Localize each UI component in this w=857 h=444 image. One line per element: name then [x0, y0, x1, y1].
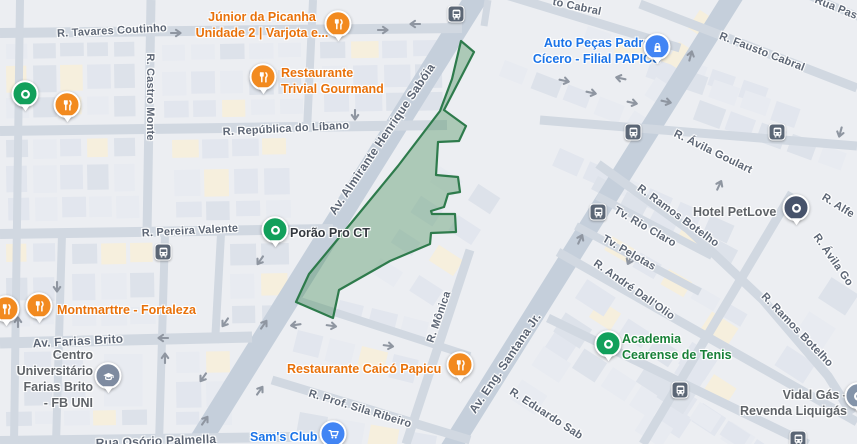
poi-label-line: Porão Pro CT	[290, 225, 370, 241]
poi-label-auto-pecas-padre-cicero[interactable]: Auto Peças PadreCícero - Filial PAPICU	[533, 35, 661, 67]
poi-label-sams-club[interactable]: Sam's Club	[250, 429, 318, 444]
road-arrow-icon	[325, 317, 340, 329]
poi-label-line: Hotel PetLove	[693, 204, 776, 220]
road-arrow-icon	[681, 46, 694, 62]
bus-icon	[450, 8, 463, 21]
poi-label-vidal-gas[interactable]: Vidal Gás -Revenda Liquigás	[740, 387, 847, 419]
poi-label-restaurante-caico-papicu[interactable]: Restaurante Caicó Papicu	[287, 361, 441, 377]
bus-icon	[771, 126, 784, 139]
poi-pin-junior-picanha[interactable]	[325, 10, 352, 37]
school-icon	[101, 369, 115, 383]
transit-stop-icon[interactable]	[590, 204, 607, 221]
transit-stop-icon[interactable]	[155, 244, 172, 261]
bus-icon	[627, 126, 640, 139]
poi-label-line: - FB UNI	[17, 395, 93, 411]
road-arrow-icon	[170, 25, 184, 35]
transit-stop-icon[interactable]	[790, 431, 807, 444]
road-arrow-icon	[626, 94, 642, 107]
poi-label-line: Trivial Gourmand	[281, 81, 384, 97]
road-arrow-icon	[660, 93, 676, 106]
poi-pin-trivial-gourmand[interactable]	[250, 63, 277, 90]
restaurant-icon	[60, 98, 74, 112]
poi-label-line: Universitário	[17, 363, 93, 379]
poi-pin-sams-club[interactable]	[320, 420, 347, 444]
poi-label-line: Montmarttre - Fortaleza	[57, 302, 196, 318]
road-arrow-icon	[558, 72, 574, 85]
poi-label-line: Centro	[17, 347, 93, 363]
transit-stop-icon[interactable]	[625, 124, 642, 141]
poi-label-line: Revenda Liquigás	[740, 403, 847, 419]
street-label-castro-monte: R. Castro Monte	[144, 53, 156, 140]
road-arrow-icon	[377, 22, 391, 32]
dot-icon	[851, 389, 857, 403]
poi-pin-auto-pecas-padre-cicero[interactable]	[644, 33, 671, 60]
poi-pin-centro-universitario-fb[interactable]	[95, 362, 122, 389]
poi-pin-academia-cearense-tenis[interactable]	[595, 330, 622, 357]
poi-label-line: Vidal Gás -	[740, 387, 847, 403]
restaurant-icon	[256, 70, 270, 84]
poi-label-line: Auto Peças Padre	[533, 35, 661, 51]
poi-label-line: Farias Brito	[17, 379, 93, 395]
poi-label-line: Restaurante	[281, 65, 384, 81]
poi-label-academia-cearense-tenis[interactable]: AcademiaCearense de Tenis	[622, 331, 732, 363]
poi-pin-porao-pro-ct[interactable]	[262, 216, 289, 243]
poi-label-porao-pro-ct[interactable]: Porão Pro CT	[290, 225, 370, 241]
dot-icon	[601, 337, 615, 351]
poi-label-line: Sam's Club	[250, 429, 318, 444]
poi-label-junior-picanha[interactable]: Júnior da PicanhaUnidade 2 | Varjota e..…	[196, 9, 329, 41]
bag-icon	[650, 40, 664, 54]
poi-label-line: Júnior da Picanha	[196, 9, 329, 25]
poi-label-hotel-petlove[interactable]: Hotel PetLove	[693, 204, 776, 220]
restaurant-icon	[453, 358, 467, 372]
poi-label-line: Academia	[622, 331, 732, 347]
dot-icon	[18, 87, 32, 101]
poi-pin-hotel-petlove[interactable]	[783, 194, 810, 221]
cart-icon	[326, 427, 340, 441]
restaurant-icon	[0, 302, 13, 316]
road-arrow-icon	[585, 84, 601, 97]
poi-pin-montmarttre-fortaleza[interactable]	[26, 292, 53, 319]
bus-icon	[592, 206, 605, 219]
transit-stop-icon[interactable]	[672, 382, 689, 399]
transit-stop-icon[interactable]	[448, 6, 465, 23]
road-arrow-icon	[55, 281, 65, 295]
poi-pin-green-topleft[interactable]	[12, 80, 39, 107]
poi-label-line: Cícero - Filial PAPICU	[533, 51, 661, 67]
transit-stop-icon[interactable]	[769, 124, 786, 141]
poi-pin-restaurant-topleft[interactable]	[54, 91, 81, 118]
poi-label-line: Restaurante Caicó Papicu	[287, 361, 441, 377]
road-arrow-icon	[407, 22, 421, 32]
bus-icon	[157, 246, 170, 259]
road-arrow-icon	[157, 350, 167, 364]
bus-icon	[674, 384, 687, 397]
restaurant-icon	[32, 299, 46, 313]
poi-pin-restaurante-caico-papicu[interactable]	[447, 351, 474, 378]
map-canvas[interactable]: R. Tavares CoutinhoR. Castro MonteR. Rep…	[0, 0, 857, 444]
dot-icon	[789, 201, 803, 215]
poi-label-line: Unidade 2 | Varjota e...	[196, 25, 329, 41]
poi-label-trivial-gourmand[interactable]: RestauranteTrivial Gourmand	[281, 65, 384, 97]
bus-icon	[792, 433, 805, 444]
road-arrow-icon	[353, 109, 363, 123]
poi-label-centro-universitario-fb[interactable]: CentroUniversitárioFarias Brito- FB UNI	[17, 347, 93, 411]
restaurant-icon	[331, 17, 345, 31]
poi-label-montmarttre-fortaleza[interactable]: Montmarttre - Fortaleza	[57, 302, 196, 318]
poi-label-line: Cearense de Tenis	[622, 347, 732, 363]
dot-icon	[268, 223, 282, 237]
road-arrow-icon	[287, 322, 302, 334]
road-arrow-icon	[382, 337, 397, 349]
road-arrow-icon	[155, 336, 169, 346]
